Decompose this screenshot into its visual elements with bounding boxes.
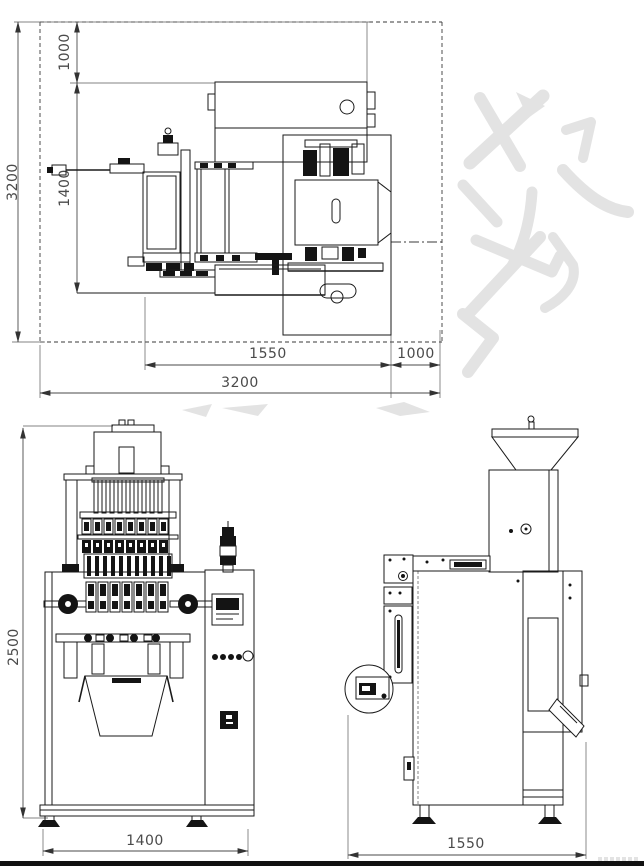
dim-label-total-depth: 3200 (5, 163, 21, 201)
film-unit-box (208, 82, 375, 128)
dosing-head-row-1 (80, 512, 176, 534)
film-roll (345, 665, 393, 713)
motor-top (158, 143, 178, 155)
cabinet-top (295, 180, 391, 245)
side-view: 1550 (345, 416, 588, 859)
base-frame-front (38, 805, 254, 827)
signal-tower (220, 521, 236, 572)
dimension-side-clearance: 1000 (391, 346, 440, 365)
feeder-column (489, 470, 558, 572)
hopper-side (492, 416, 578, 470)
film-bracket-stack (384, 555, 413, 683)
leveling-foot (186, 820, 208, 827)
watermark-logo (182, 92, 628, 417)
dim-label-width: 1400 (126, 833, 164, 849)
main-body-side (413, 571, 563, 805)
dosing-tubes (92, 478, 164, 513)
film-feed-beam (413, 556, 490, 571)
dim-label-height: 2500 (6, 628, 22, 666)
machine-plan (47, 82, 391, 335)
dosing-head-row-2 (78, 535, 178, 553)
watermark-fragment (182, 404, 212, 417)
top-view: 3200 1000 1400 1550 1000 3200 (5, 22, 443, 398)
bottom-border (0, 861, 644, 866)
leveling-foot (412, 817, 436, 824)
dimension-machine-width: 1550 (145, 346, 391, 365)
hopper-front (86, 420, 169, 474)
watermark-dotted-strip (598, 857, 638, 861)
main-switch (220, 711, 238, 729)
watermark-stroke (566, 122, 591, 158)
watermark-fragment (222, 404, 268, 416)
leveling-foot (538, 817, 562, 824)
push-button (236, 654, 242, 660)
dimension-rear-clearance: 1000 (57, 22, 77, 83)
push-button (228, 654, 234, 660)
drawing-canvas: 3200 1000 1400 1550 1000 3200 (0, 0, 644, 866)
dim-label-rear-clearance: 1000 (57, 33, 73, 71)
film-roll-unit-top (143, 128, 190, 270)
door-latch (404, 757, 414, 780)
dimension-width: 1400 (43, 829, 248, 856)
machine-side (345, 416, 588, 824)
dim-label-total-width: 3200 (221, 375, 259, 391)
leveling-foot (38, 820, 60, 827)
t-bracket (255, 253, 292, 260)
dim-label-side-clearance: 1000 (397, 346, 435, 362)
push-button (220, 654, 226, 660)
push-button (212, 654, 218, 660)
watermark-stroke (463, 314, 493, 372)
front-view: 2500 (6, 420, 254, 856)
watermark-stroke (463, 185, 497, 222)
watermark-fragment (376, 402, 430, 416)
dimension-total-width: 3200 (40, 375, 440, 393)
machine-front (38, 420, 254, 827)
dimension-total-depth: 3200 (5, 22, 21, 342)
dim-label-machine-width: 1550 (249, 346, 287, 362)
belt-conveyor-top (195, 162, 257, 262)
dimension-machine-depth: 1400 (57, 83, 77, 293)
watermark-stroke (563, 170, 628, 212)
base-feet-side (412, 805, 562, 824)
dim-label-depth: 1550 (447, 836, 485, 852)
